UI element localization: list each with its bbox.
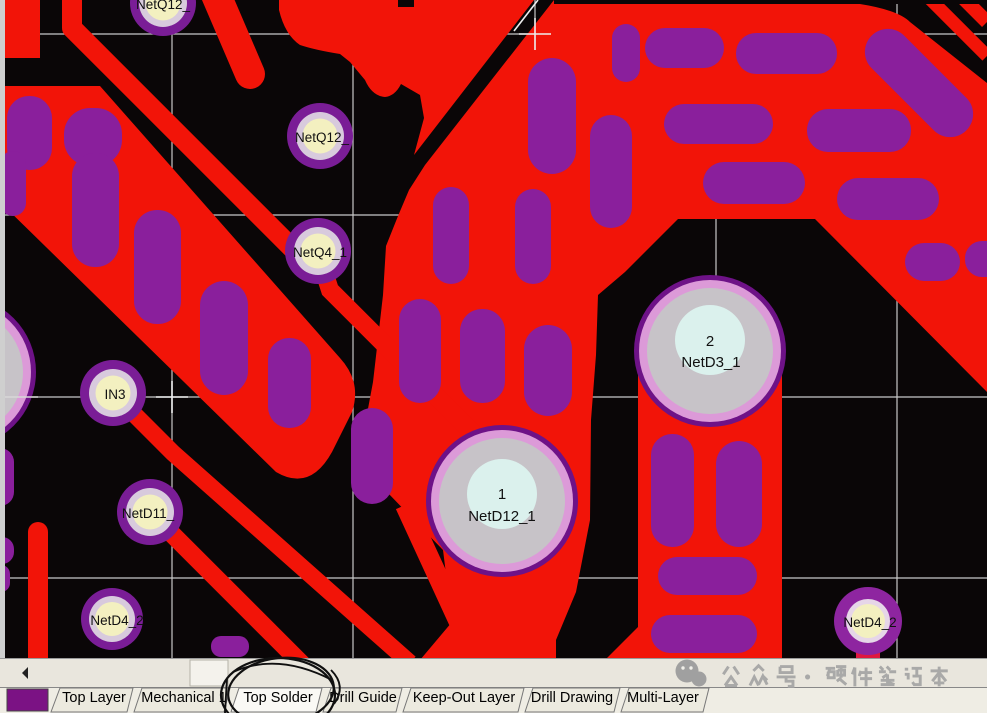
svg-text:NetD4_2: NetD4_2 [843,615,896,630]
svg-text:1: 1 [498,486,506,503]
svg-text:Drill Drawing: Drill Drawing [531,690,613,706]
svg-text:NetQ12_: NetQ12_ [136,0,191,12]
svg-text:IN3: IN3 [104,387,125,402]
svg-text:Mechanical 1: Mechanical 1 [141,690,226,706]
svg-text:NetD4_2: NetD4_2 [90,613,143,628]
svg-text:NetD3_1: NetD3_1 [681,354,740,371]
svg-text:Top Layer: Top Layer [62,690,126,706]
svg-text:NetQ4_1: NetQ4_1 [293,245,347,260]
svg-text:NetQ12_: NetQ12_ [295,130,350,145]
svg-text:Multi-Layer: Multi-Layer [627,690,699,706]
svg-text:2: 2 [706,333,714,350]
svg-text:Top Solder: Top Solder [243,690,312,706]
svg-text:NetD11_: NetD11_ [122,506,175,521]
svg-text:Keep-Out Layer: Keep-Out Layer [413,690,516,706]
svg-text:NetD12_1: NetD12_1 [468,508,536,525]
